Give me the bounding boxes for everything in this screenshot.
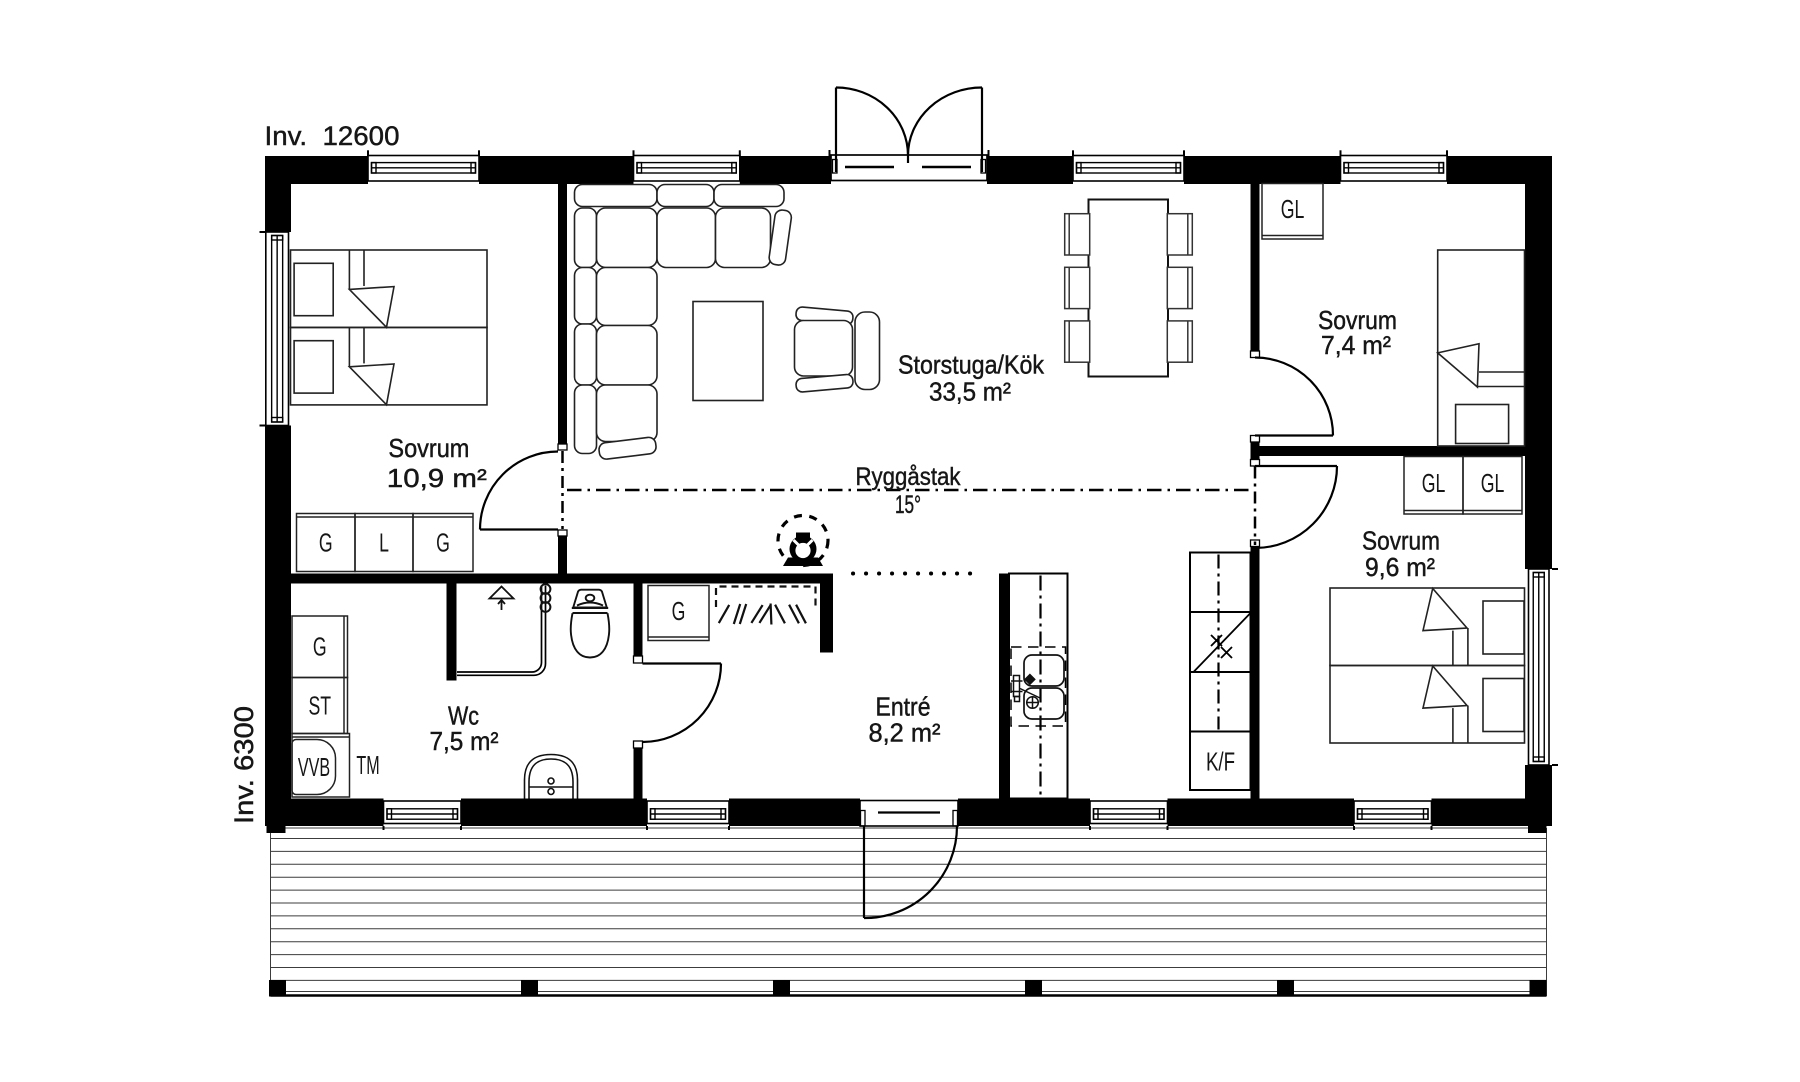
svg-text:VVB: VVB xyxy=(298,752,330,782)
svg-text:Sovrum: Sovrum xyxy=(1362,526,1440,556)
svg-text:GL: GL xyxy=(1281,195,1305,224)
svg-text:Ryggåstak: Ryggåstak xyxy=(856,463,961,491)
svg-text:Inv. 12600: Inv. 12600 xyxy=(265,121,400,151)
svg-text:L: L xyxy=(379,528,389,557)
svg-text:10,9 m²: 10,9 m² xyxy=(387,463,487,493)
svg-text:Storstuga/Kök: Storstuga/Kök xyxy=(898,350,1045,380)
svg-text:G: G xyxy=(313,632,327,661)
svg-text:8,2 m²: 8,2 m² xyxy=(869,718,941,748)
svg-text:TM: TM xyxy=(356,750,379,780)
svg-text:7,5 m²: 7,5 m² xyxy=(430,726,499,756)
svg-text:33,5 m²: 33,5 m² xyxy=(929,377,1011,407)
svg-text:GL: GL xyxy=(1481,469,1505,498)
svg-text:G: G xyxy=(672,596,686,625)
svg-text:K/F: K/F xyxy=(1206,747,1235,777)
svg-text:GL: GL xyxy=(1422,469,1446,498)
svg-text:ST: ST xyxy=(308,691,331,720)
svg-text:Sovrum: Sovrum xyxy=(388,433,469,463)
svg-text:9,6 m²: 9,6 m² xyxy=(1365,552,1435,582)
svg-text:15°: 15° xyxy=(895,491,921,519)
svg-text:Inv. 6300: Inv. 6300 xyxy=(229,706,259,824)
svg-text:7,4 m²: 7,4 m² xyxy=(1321,330,1391,360)
svg-text:G: G xyxy=(436,528,450,557)
svg-text:G: G xyxy=(319,528,333,557)
